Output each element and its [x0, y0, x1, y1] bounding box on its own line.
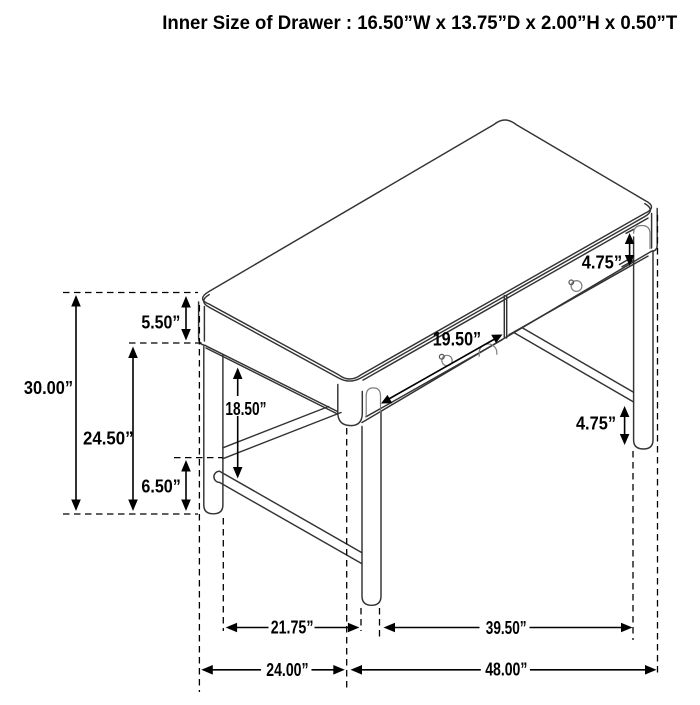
- svg-text:18.50”: 18.50”: [225, 399, 266, 419]
- svg-text:19.50”: 19.50”: [433, 330, 481, 351]
- svg-text:24.50”: 24.50”: [83, 428, 134, 448]
- svg-text:24.00”: 24.00”: [266, 660, 308, 680]
- svg-text:48.00”: 48.00”: [485, 659, 527, 679]
- svg-text:39.50”: 39.50”: [486, 618, 527, 638]
- svg-text:4.75”: 4.75”: [582, 252, 622, 272]
- svg-text:6.50”: 6.50”: [141, 477, 180, 497]
- svg-text:Inner Size of Drawer : 16.50”W: Inner Size of Drawer : 16.50”W x 13.75”D…: [162, 13, 677, 34]
- svg-text:4.75”: 4.75”: [576, 414, 616, 434]
- svg-text:30.00”: 30.00”: [24, 378, 73, 398]
- svg-text:5.50”: 5.50”: [141, 313, 180, 333]
- svg-text:21.75”: 21.75”: [271, 617, 314, 637]
